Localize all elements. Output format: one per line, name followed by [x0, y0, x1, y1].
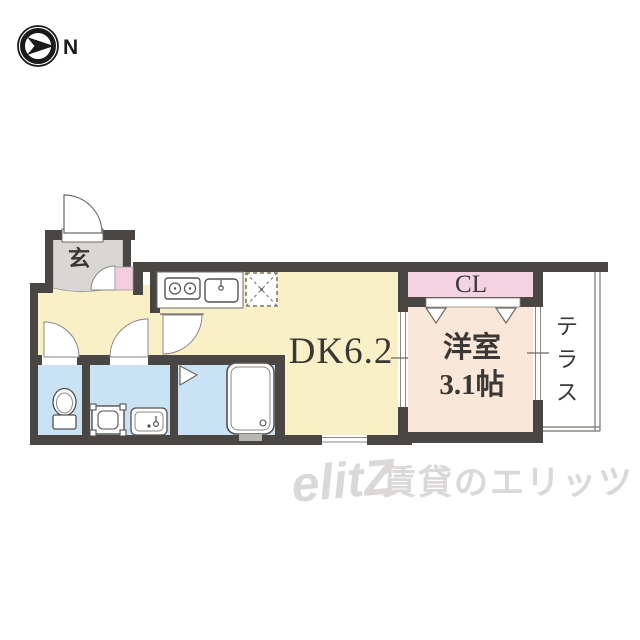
terrace-label-char2: ラ [556, 347, 578, 372]
wall-entry-right [123, 230, 131, 268]
kitchen-fixtures [157, 272, 277, 308]
wall-dk-west-upper [398, 262, 408, 312]
western-room-label-line1: 洋室 [443, 330, 501, 364]
stove-burner-left-dot [174, 287, 176, 289]
wall-washroom-bath [170, 355, 178, 445]
closet-door-track [426, 298, 520, 307]
wall-toilet-washroom [82, 355, 90, 445]
wall-entry-closet-right [133, 262, 143, 295]
watermark-text: 賃貸のエリッツ [381, 464, 634, 502]
bathtub-apron [239, 434, 262, 441]
terrace-label-char3: ス [556, 380, 578, 405]
dk-west-sliding-door [398, 312, 408, 407]
wall-entry-left [45, 230, 53, 290]
washer-corner-br [120, 430, 126, 436]
wall-bottom-west [408, 432, 543, 443]
dk-label: DK6.2 [289, 331, 394, 372]
wall-bath-right [275, 355, 285, 445]
genkan-label: 玄 [68, 246, 90, 271]
washing-machine-icon [92, 406, 124, 434]
compass-north-label: N [63, 36, 78, 59]
compass: N [18, 26, 78, 66]
stove-burner-right-dot [189, 287, 191, 289]
refrigerator-center-dot [260, 288, 263, 291]
watermark: elitZ 賃貸のエリッツ [289, 448, 634, 513]
closet-label: CL [455, 271, 487, 298]
dk-window [322, 435, 367, 445]
terrace-label-char1: テ [556, 314, 578, 339]
entry-door-swing [64, 195, 102, 233]
toilet-tank [53, 415, 76, 429]
floor-plan-svg: N 玄 DK6.2 CL 洋室 3.1帖 テ ラ ス elitZ 賃貸のエリッツ [0, 0, 640, 640]
washer-corner-bl [90, 430, 96, 436]
washer-corner-tl [90, 404, 96, 410]
western-room-label-line2: 3.1帖 [439, 368, 504, 401]
wall-right-upper [533, 262, 543, 307]
entry-closet [115, 267, 133, 290]
floor-plan-page: N 玄 DK6.2 CL 洋室 3.1帖 テ ラ ス elitZ 賃貸のエリッツ [0, 0, 640, 640]
washroom-drain-dot [147, 424, 150, 427]
washer-corner-tr [120, 404, 126, 410]
stove-icon [165, 278, 200, 299]
bathtub-icon [227, 363, 274, 434]
